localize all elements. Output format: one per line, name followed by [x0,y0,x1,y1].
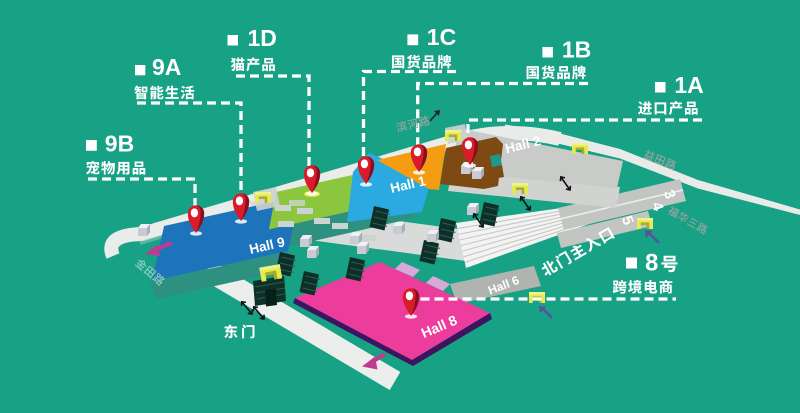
svg-text:9B: 9B [105,131,134,157]
svg-text:8: 8 [645,250,658,277]
svg-text:1A: 1A [674,72,703,98]
svg-text:1D: 1D [248,25,277,51]
svg-text:9A: 9A [152,54,181,80]
svg-text:1B: 1B [562,37,591,63]
svg-text:1C: 1C [427,24,456,50]
